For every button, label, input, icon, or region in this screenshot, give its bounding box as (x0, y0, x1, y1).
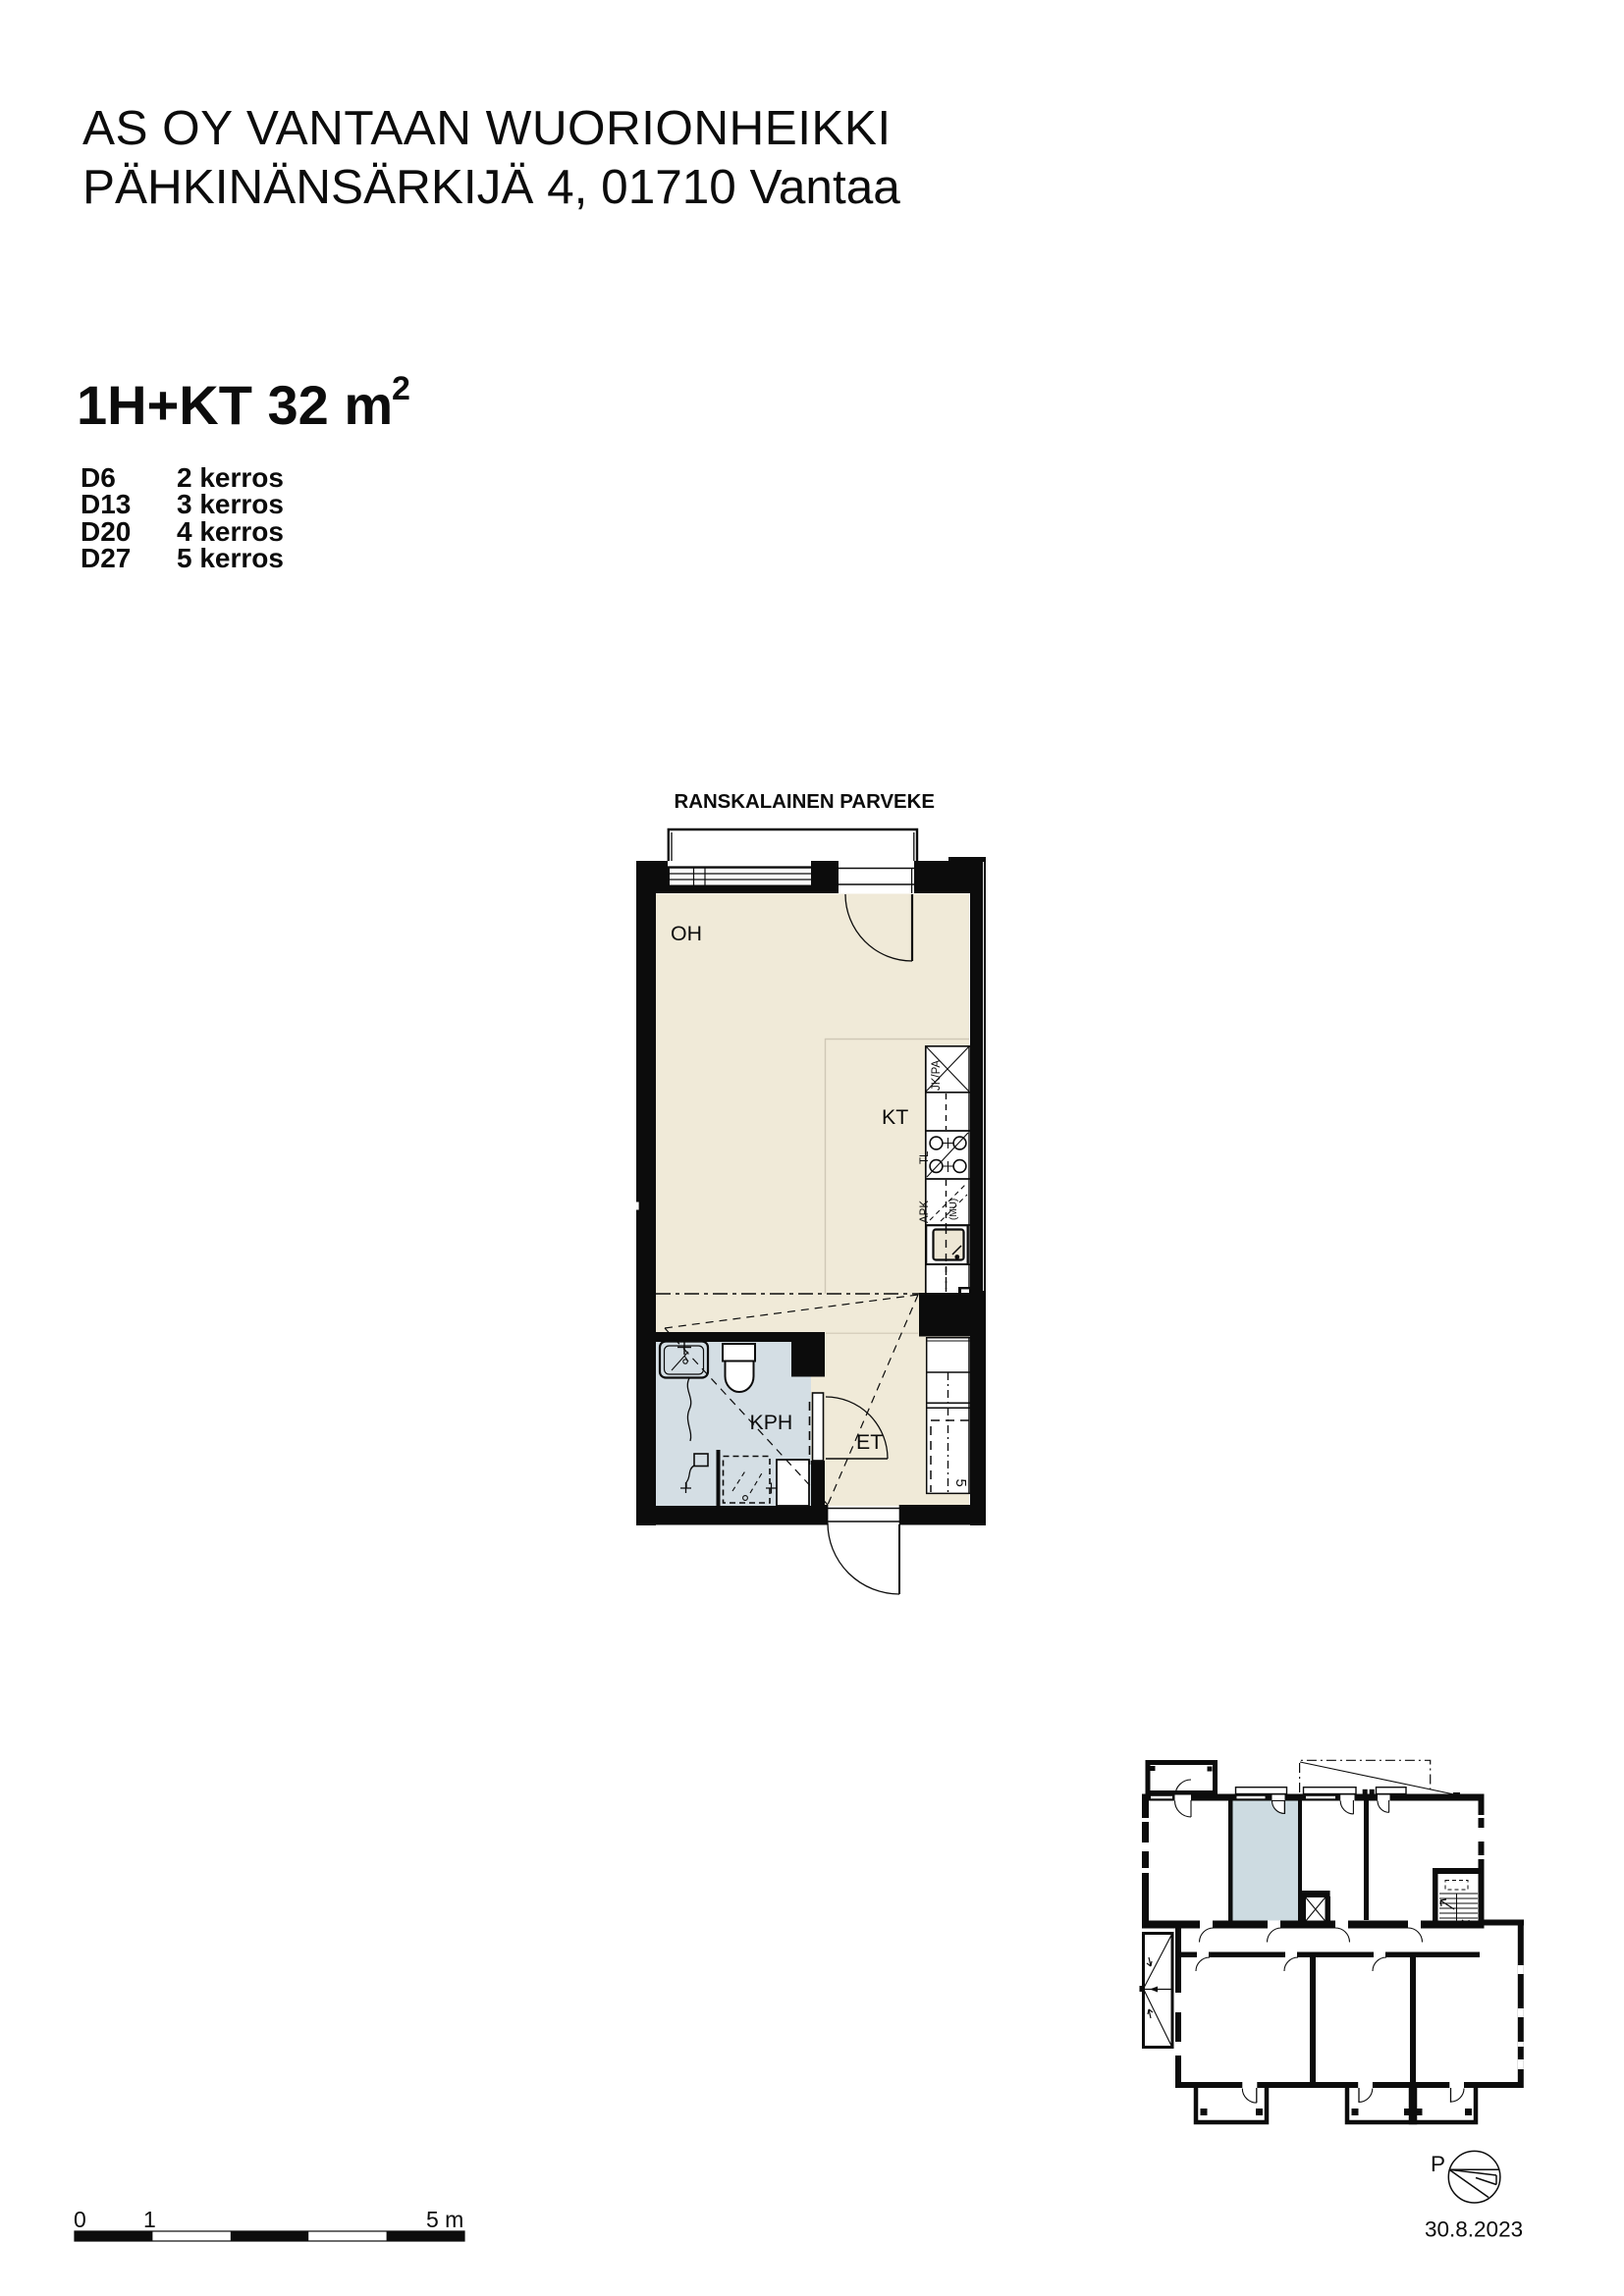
svg-text:2: 2 (392, 370, 410, 407)
svg-text:TL: TL (919, 1150, 931, 1164)
svg-text:JK/PA: JK/PA (931, 1060, 943, 1091)
svg-text:5 m: 5 m (426, 2207, 463, 2232)
svg-text:30.8.2023: 30.8.2023 (1425, 2217, 1523, 2242)
svg-text:5: 5 (952, 1479, 969, 1487)
svg-text:KPH: KPH (750, 1411, 793, 1434)
svg-text:KT: KT (882, 1105, 908, 1129)
svg-text:1H+KT 32 m: 1H+KT 32 m (77, 374, 393, 436)
svg-text:D13: D13 (81, 489, 131, 519)
svg-text:OH: OH (671, 922, 702, 945)
svg-text:PÄHKINÄNSÄRKIJÄ 4, 01710 Vanta: PÄHKINÄNSÄRKIJÄ 4, 01710 Vantaa (82, 160, 900, 214)
svg-text:AS OY VANTAAN WUORIONHEIKKI: AS OY VANTAAN WUORIONHEIKKI (82, 101, 892, 155)
svg-text:ET: ET (856, 1430, 883, 1454)
svg-text:RANSKALAINEN PARVEKE: RANSKALAINEN PARVEKE (675, 791, 936, 813)
svg-text:APK: APK (919, 1201, 931, 1223)
svg-text:P: P (1431, 2152, 1445, 2176)
svg-text:5 kerros: 5 kerros (177, 543, 284, 573)
svg-text:1: 1 (143, 2207, 156, 2232)
svg-text:3 kerros: 3 kerros (177, 489, 284, 519)
svg-text:0: 0 (74, 2207, 86, 2232)
svg-text:(MU): (MU) (948, 1199, 959, 1220)
svg-text:D27: D27 (81, 543, 131, 573)
